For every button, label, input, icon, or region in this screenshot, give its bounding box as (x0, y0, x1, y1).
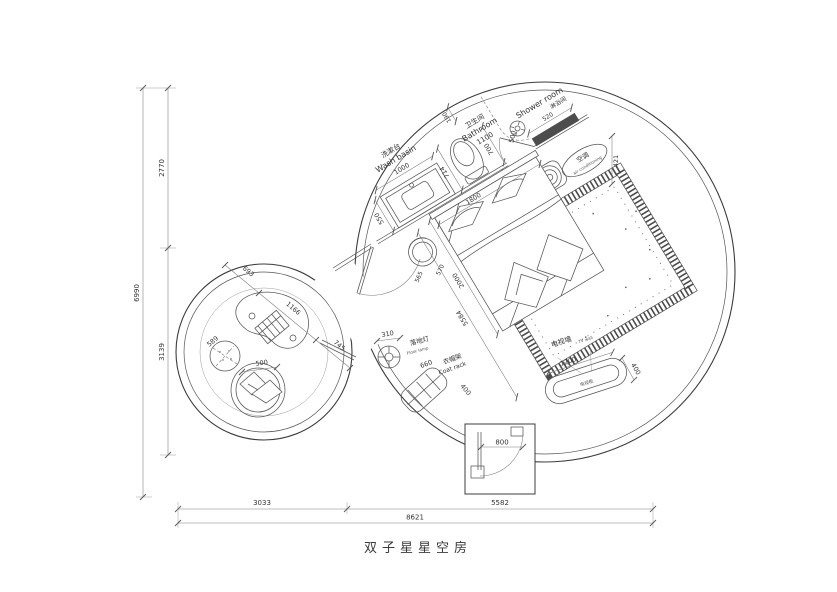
svg-text:700: 700 (482, 142, 495, 157)
dim-693: 693 (241, 264, 256, 278)
entry-vestibule: 800 (465, 424, 535, 494)
dim-height-total: 6990 (133, 284, 141, 302)
svg-text:550: 550 (373, 211, 386, 226)
svg-text:714: 714 (438, 165, 451, 180)
label-tv-wall-cn: 电视墙 (550, 334, 573, 349)
ac-label-balloon: 空调 air conditioning (557, 138, 612, 183)
dim-width-right: 5582 (491, 499, 509, 507)
dim-190: 190 (438, 103, 460, 128)
svg-text:520: 520 (541, 111, 555, 123)
dim-stool-b: 570 (435, 263, 446, 276)
dim-coat-rack-depth: 400 (458, 382, 472, 397)
dim-bathroom-door: 500 (507, 130, 518, 144)
svg-text:500: 500 (255, 358, 268, 368)
dim-width-total: 8621 (406, 514, 424, 522)
corridor-opening (314, 257, 399, 355)
left-dimensions: 6990 2770 3139 (133, 85, 176, 500)
dim-entry-door: 800 (495, 439, 508, 447)
label-tv-cabinet: 电视柜 (579, 377, 594, 388)
svg-text:400: 400 (629, 362, 642, 377)
svg-text:310: 310 (381, 329, 395, 339)
label-tv-wall-en: TV wall (577, 335, 594, 345)
svg-text:5584: 5584 (455, 309, 470, 327)
floor-lamp (378, 346, 400, 368)
svg-text:421: 421 (612, 155, 620, 167)
dim-height-lower: 3139 (158, 343, 166, 361)
label-floor-lamp-en: Floor lamp (406, 345, 429, 356)
bottom-dimensions: 3033 5582 8621 (175, 499, 656, 528)
lounge-desk (236, 292, 309, 348)
dim-height-upper: 2770 (158, 159, 166, 177)
svg-text:1200: 1200 (559, 355, 577, 368)
floor-plan-svg: 800 (0, 0, 837, 592)
dim-width-left: 3033 (253, 499, 271, 507)
drawing-title: 双子星星空房 (364, 540, 472, 556)
lounge-pouf (210, 341, 240, 371)
dim-pouf: 589 (205, 334, 220, 348)
bed (429, 150, 606, 332)
dim-1166: 1166 (284, 300, 302, 317)
lounge-chair (231, 363, 285, 417)
dim-stool-a: 565 (414, 270, 425, 283)
bedside-stool (403, 233, 442, 272)
dim-tv-depth: 400 (619, 355, 642, 383)
laptop (255, 310, 289, 343)
svg-text:2000: 2000 (451, 271, 466, 289)
shower-partition-wall (532, 113, 579, 146)
floor-plan-page: 800 (0, 0, 837, 592)
